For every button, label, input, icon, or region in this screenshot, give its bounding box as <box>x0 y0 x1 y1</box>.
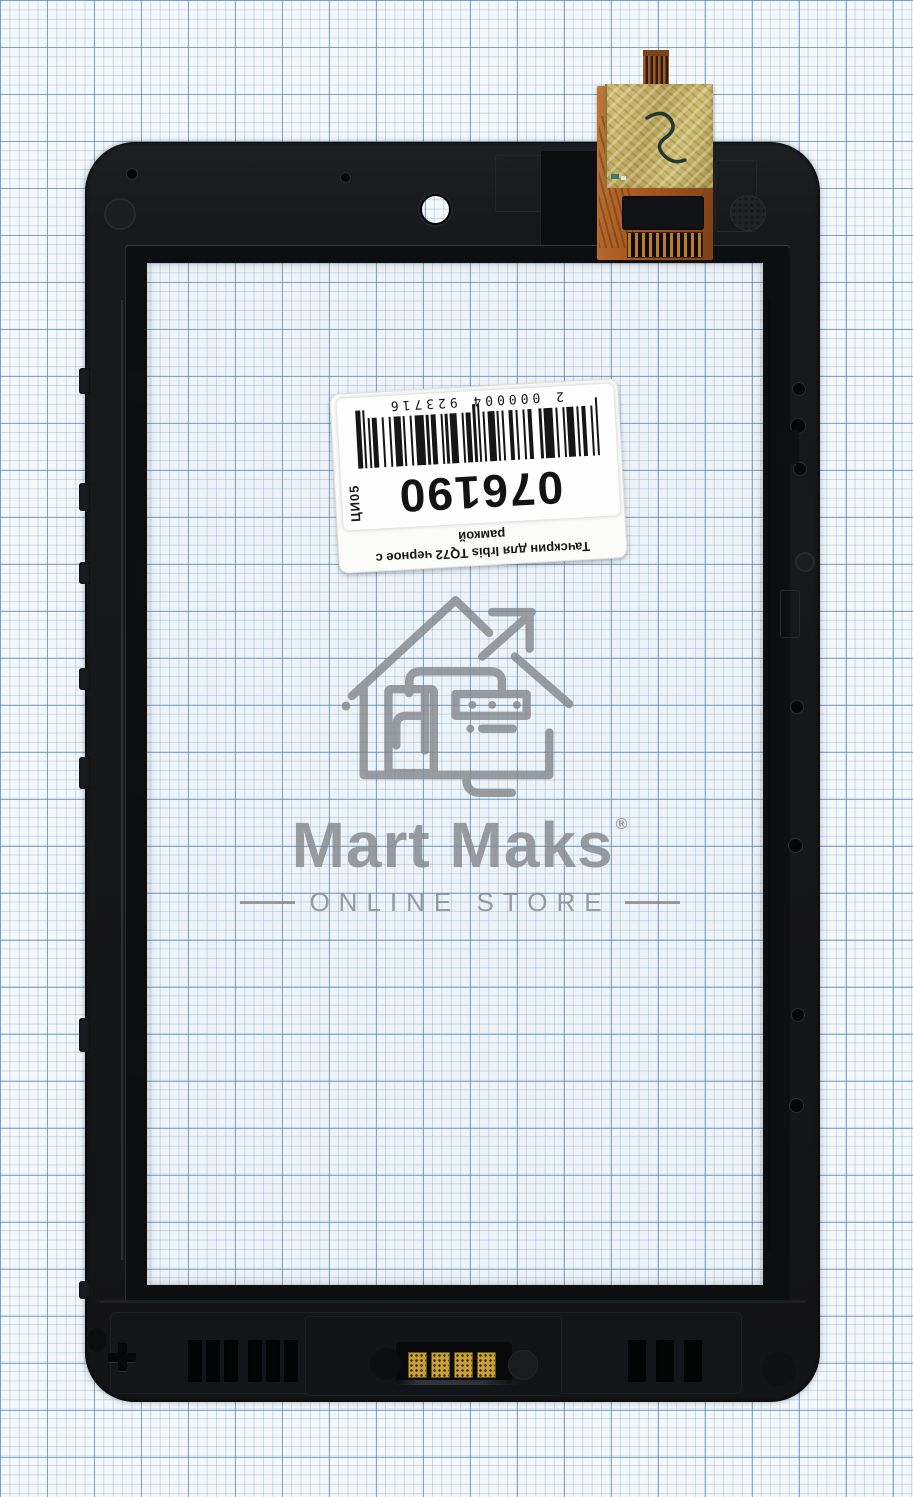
cross-mark <box>118 1343 127 1371</box>
frame-inner-notch <box>128 372 146 402</box>
vent-slot <box>628 1340 646 1382</box>
frame-side-hole <box>791 1008 805 1022</box>
bottom-dark-circle <box>762 1352 796 1386</box>
barcode-bar <box>555 407 560 457</box>
barcode-bar <box>567 407 577 457</box>
gold-contact-pad <box>454 1352 473 1378</box>
barcode-bar <box>508 410 515 460</box>
frame-clip-tab <box>79 1281 90 1299</box>
frame-clip-tab <box>79 483 90 511</box>
barcode-bar <box>466 412 473 462</box>
flex-speck <box>611 174 619 179</box>
frame-clip-tab <box>79 1018 90 1052</box>
gold-kapton-tape <box>605 84 713 188</box>
side-code: ЦИ05 <box>346 484 363 522</box>
frame-side-outline <box>780 590 800 638</box>
bottom-dark-blob <box>88 1328 106 1352</box>
barcode-bar <box>581 406 588 456</box>
vent-slot <box>248 1340 262 1382</box>
frame-inner-notch <box>130 560 146 600</box>
frame-side-hole <box>789 1098 804 1113</box>
barcode-bar <box>487 411 497 461</box>
barcode-bar <box>414 415 426 465</box>
frame-inner-notch <box>128 760 146 794</box>
vent-slot <box>266 1340 280 1382</box>
barcode-label: Тачскрин для Irbis TQ72 черное с рамкой … <box>329 378 628 574</box>
frame-screw-hole <box>340 172 351 183</box>
item-number: 076190 <box>396 461 564 522</box>
frame-edge-highlight <box>121 300 123 1260</box>
flex-gold-pins <box>627 232 703 258</box>
gold-contact-pad <box>408 1352 427 1378</box>
pen-mark <box>629 104 699 174</box>
vent-slot <box>284 1340 298 1382</box>
frame-clip-tab <box>79 757 90 789</box>
frame-clip-tab <box>79 562 90 584</box>
frame-side-hole <box>788 838 803 853</box>
frame-screw-hole <box>126 168 138 180</box>
flex-cable-assembly <box>595 46 717 260</box>
graph-paper-background: { "photo": { "subject": "touchscreen-dig… <box>0 0 913 1497</box>
bottom-ledge-line <box>100 1300 805 1303</box>
frame-side-hole <box>790 700 804 714</box>
frame-side-hole <box>793 462 807 476</box>
scratch-mark <box>395 1380 520 1385</box>
gold-contact-pad <box>477 1352 496 1378</box>
vent-slot <box>656 1340 674 1382</box>
barcode-sticker: 076190 ЦИ05 2 000004 923716 <box>336 383 620 530</box>
frame-side-notch <box>777 430 799 464</box>
gold-contact-pad <box>431 1352 450 1378</box>
frame-clip-tab <box>79 368 90 394</box>
frame-edge-groove <box>768 300 771 1250</box>
barcode-bar <box>594 397 600 455</box>
bottom-dark-circle <box>370 1348 402 1380</box>
frame-clip-tab <box>79 668 90 690</box>
vent-slot <box>224 1340 238 1382</box>
barcode-bar <box>527 409 534 459</box>
barcode-bar <box>431 414 438 464</box>
barcode-bar <box>501 411 506 461</box>
barcode-bar <box>515 410 520 460</box>
frame-side-boss <box>795 552 815 572</box>
flex-connector-block <box>622 196 704 230</box>
barcode-bar <box>372 418 379 468</box>
label-content-rotated: Тачскрин для Irbis TQ72 черное с рамкой … <box>330 379 626 573</box>
vent-slot <box>684 1340 702 1382</box>
barcode-bar <box>449 413 459 463</box>
barcode-bar <box>381 417 386 467</box>
barcode-bar <box>393 416 403 466</box>
frame-boss-circle <box>104 198 136 230</box>
vent-slot <box>206 1340 220 1382</box>
product-photo: 130306 S760D <box>0 0 913 1497</box>
frame-textured-boss <box>730 195 766 231</box>
bottom-circle <box>508 1350 538 1380</box>
frame-inner-notch <box>129 1040 145 1076</box>
frame-side-hole <box>792 382 806 396</box>
flex-speck <box>621 176 626 180</box>
barcode-bar <box>543 408 555 458</box>
barcode-bar <box>403 416 408 466</box>
vent-slot <box>188 1340 202 1382</box>
frame-through-hole <box>420 194 451 225</box>
